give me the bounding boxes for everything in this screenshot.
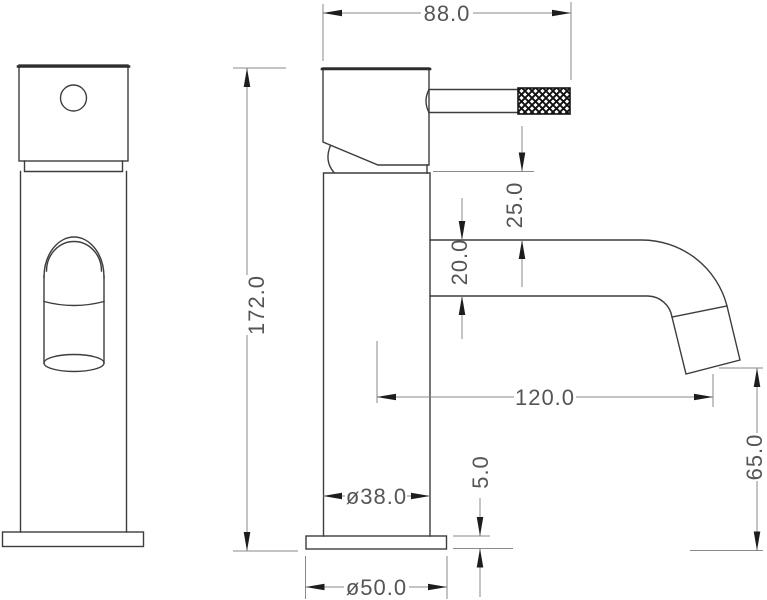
dim-body-diameter-label: ø38.0 — [346, 484, 407, 509]
dim-base-thickness-lines — [453, 498, 513, 597]
front-body — [21, 172, 127, 533]
dim-spout-reach: 120.0 — [377, 341, 713, 410]
arrow-right-icon — [694, 394, 713, 401]
arrow-right-icon — [428, 584, 447, 591]
front-spout-dome — [44, 237, 104, 277]
arrow-left-icon — [323, 493, 342, 500]
arrow-down-icon — [244, 532, 251, 551]
dim-spout-reach-label: 120.0 — [515, 385, 575, 410]
arrow-down-icon — [477, 517, 484, 536]
dim-body-diameter: ø38.0 — [323, 484, 430, 509]
dim-overall-height: 172.0 — [233, 68, 298, 551]
arrow-left-icon — [323, 10, 342, 17]
arrow-right-icon — [411, 493, 430, 500]
side-lever-knurl-grip — [518, 88, 570, 114]
side-spout-joint-line — [672, 306, 727, 317]
dim-spout-diameter: 20.0 — [447, 198, 472, 339]
drawing-svg: 88.0 172.0 25.0 20.0 — [0, 0, 767, 600]
side-head — [323, 68, 429, 165]
side-cartridge-arc — [328, 146, 334, 173]
front-head — [19, 65, 128, 161]
arrow-left-icon — [306, 584, 325, 591]
dim-base-diameter: ø50.0 — [306, 556, 448, 600]
arrow-up-icon — [754, 368, 761, 387]
front-collar — [25, 161, 123, 172]
arrow-up-icon — [519, 240, 526, 259]
dim-body-to-spout-label: 25.0 — [502, 182, 527, 229]
dim-base-thickness: 5.0 — [453, 455, 513, 597]
dim-base-diameter-label: ø50.0 — [346, 575, 407, 600]
side-spout — [430, 240, 740, 374]
dimensions: 88.0 172.0 25.0 20.0 — [233, 1, 767, 600]
front-spout-sides — [44, 276, 104, 363]
front-view — [3, 65, 144, 547]
side-lever — [429, 90, 518, 113]
faucet-technical-drawing: 88.0 172.0 25.0 20.0 — [0, 0, 767, 600]
arrow-down-icon — [459, 221, 466, 240]
dim-spout-diameter-label: 20.0 — [447, 239, 472, 286]
arrow-down-icon — [519, 153, 526, 172]
arrow-up-icon — [459, 296, 466, 315]
dim-overall-height-label: 172.0 — [244, 275, 269, 335]
arrow-up-icon — [477, 549, 484, 568]
dim-head-width-label: 88.0 — [424, 1, 471, 26]
front-spout-mid-line — [44, 302, 104, 306]
front-spout-outlet — [44, 355, 104, 372]
side-view — [306, 68, 740, 549]
arrow-down-icon — [754, 532, 761, 551]
arrow-left-icon — [377, 394, 396, 401]
side-base — [306, 536, 447, 549]
front-handle-button — [61, 85, 87, 111]
dim-base-thickness-label: 5.0 — [468, 455, 493, 489]
front-base — [3, 532, 144, 547]
dim-outlet-height-label: 65.0 — [742, 434, 767, 481]
arrow-right-icon — [552, 10, 571, 17]
arrow-up-icon — [244, 68, 251, 87]
